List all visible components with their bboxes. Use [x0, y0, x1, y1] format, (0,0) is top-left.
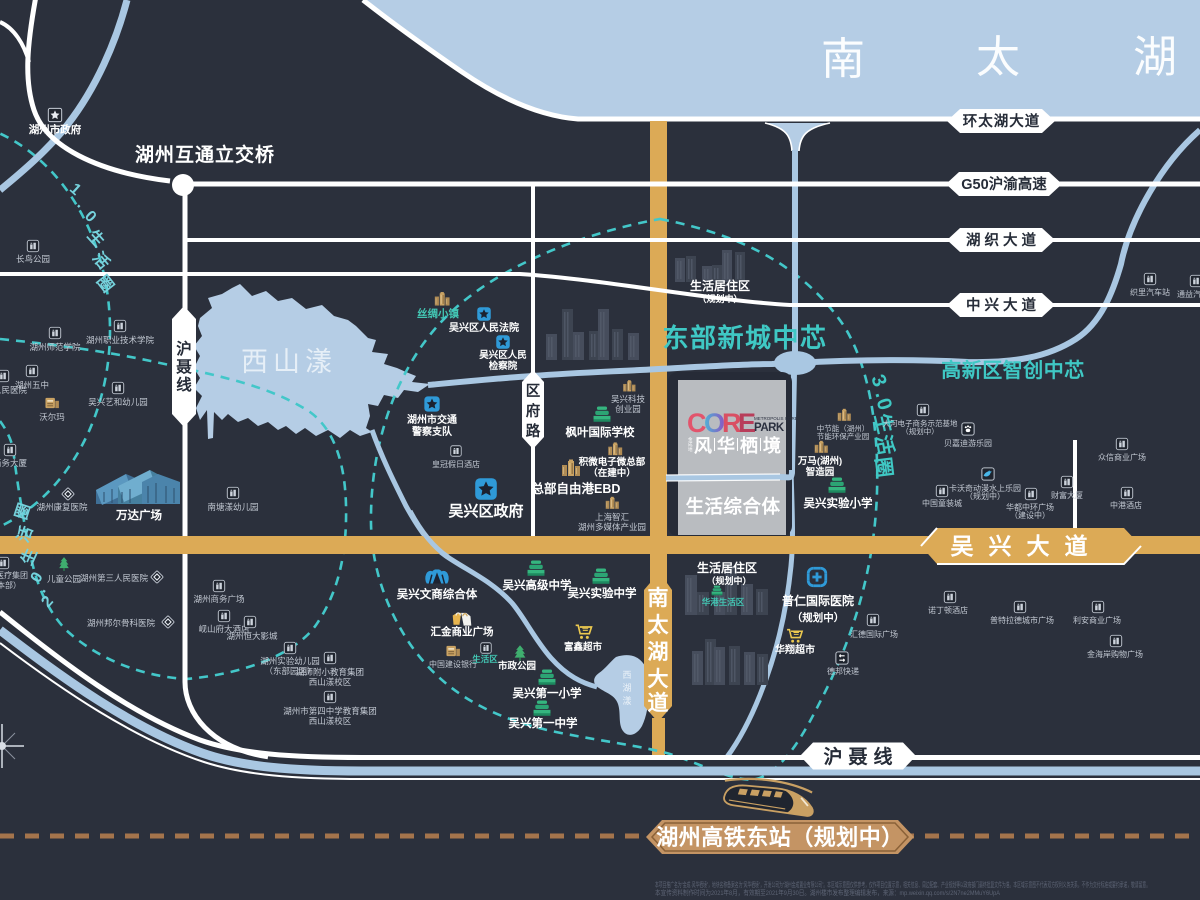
svg-text:太: 太: [976, 33, 1020, 82]
svg-text:贝嘉迪游乐园: 贝嘉迪游乐园: [944, 438, 992, 448]
svg-text:上海智汇: 上海智汇: [595, 512, 630, 522]
svg-text:汇德国际广场: 汇德国际广场: [850, 629, 898, 639]
svg-text:西: 西: [622, 670, 631, 680]
svg-text:通益汽车站: 通益汽车站: [1177, 289, 1200, 299]
svg-text:吴兴区人民法院: 吴兴区人民法院: [449, 321, 519, 334]
svg-text:诺丁顿酒店: 诺丁顿酒店: [928, 605, 968, 615]
svg-text:湖州恒大影城: 湖州恒大影城: [226, 631, 278, 641]
svg-text:富鑫超市: 富鑫超市: [564, 641, 603, 653]
svg-text:G50沪渝高速: G50沪渝高速: [961, 175, 1047, 193]
svg-text:湖师附小教育集团: 湖师附小教育集团: [296, 667, 364, 677]
svg-text:兴: 兴: [989, 533, 1012, 559]
svg-text:中港酒店: 中港酒店: [1110, 500, 1142, 510]
svg-text:枫叶国际学校: 枫叶国际学校: [566, 425, 635, 439]
svg-text:湖州市交通: 湖州市交通: [407, 413, 457, 426]
svg-text:风: 风: [694, 436, 712, 456]
svg-text:湖州实验幼儿园: 湖州实验幼儿园: [260, 656, 320, 666]
svg-text:道: 道: [1065, 533, 1088, 559]
svg-text:普特拉德城市广场: 普特拉德城市广场: [990, 615, 1054, 625]
svg-text:栖: 栖: [740, 435, 758, 456]
svg-text:湖州康复医院: 湖州康复医院: [36, 502, 88, 512]
svg-text:湖州职业技术学院: 湖州职业技术学院: [86, 335, 155, 345]
svg-text:节能环保产业园: 节能环保产业园: [817, 431, 870, 441]
svg-text:（规划中）: （规划中）: [697, 293, 742, 304]
svg-text:南: 南: [648, 586, 669, 610]
svg-text:中国建设银行: 中国建设银行: [429, 659, 477, 669]
svg-text:（本部）: （本部）: [0, 580, 21, 590]
svg-text:（规划中）: （规划中）: [792, 611, 845, 624]
svg-text:吴兴区人民: 吴兴区人民: [479, 349, 527, 361]
svg-text:人民医院: 人民医院: [0, 385, 27, 395]
svg-text:总部自由港EBD: 总部自由港EBD: [532, 481, 621, 496]
svg-text:吴兴区政府: 吴兴区政府: [448, 502, 523, 520]
svg-text:汇金商业广场: 汇金商业广场: [431, 625, 494, 638]
svg-text:财富大厦: 财富大厦: [1051, 490, 1083, 500]
svg-text:湖织大道: 湖织大道: [966, 231, 1040, 249]
svg-text:府: 府: [526, 402, 541, 420]
svg-text:沃尔玛: 沃尔玛: [39, 412, 65, 422]
svg-text:湖州多媒体产业园: 湖州多媒体产业园: [578, 522, 646, 532]
svg-text:PARK: PARK: [754, 422, 785, 434]
svg-text:湖州第三人民医院: 湖州第三人民医院: [80, 573, 149, 583]
svg-text:万马(湖州): 万马(湖州): [797, 455, 842, 467]
svg-text:道: 道: [648, 691, 669, 715]
svg-text:境: 境: [763, 435, 781, 456]
svg-text:利安商业广场: 利安商业广场: [1073, 615, 1121, 625]
svg-text:长鸟公园: 长鸟公园: [16, 254, 50, 264]
svg-text:警察支队: 警察支队: [411, 425, 453, 438]
svg-text:（规划中）: （规划中）: [965, 491, 1005, 501]
svg-text:吴兴实验小学: 吴兴实验小学: [804, 496, 873, 510]
svg-text:吴兴科技: 吴兴科技: [611, 394, 646, 404]
svg-text:圈: 圈: [871, 456, 896, 479]
svg-text:湖: 湖: [648, 641, 669, 664]
svg-text:丝绸小镇: 丝绸小镇: [417, 307, 459, 320]
svg-text:万达广场: 万达广场: [115, 508, 162, 522]
svg-text:州医疗集团: 州医疗集团: [0, 570, 28, 580]
svg-text:（建设中）: （建设中）: [1010, 510, 1050, 520]
svg-text:华翔超市: 华翔超市: [775, 643, 815, 656]
svg-text:太: 太: [648, 614, 670, 637]
svg-text:智造园: 智造园: [806, 466, 835, 478]
svg-text:织里汽车站: 织里汽车站: [1130, 287, 1170, 297]
svg-text:华港生活区: 华港生活区: [702, 597, 745, 607]
svg-text:湖州市政府: 湖州市政府: [29, 123, 82, 136]
svg-text:湖州商务广场: 湖州商务广场: [193, 594, 244, 604]
svg-text:中兴大道: 中兴大道: [966, 296, 1040, 314]
svg-text:湖州师范学院: 湖州师范学院: [29, 342, 81, 352]
svg-text:金海岸购物广场: 金海岸购物广场: [1087, 649, 1143, 659]
svg-text:商务大厦: 商务大厦: [0, 458, 27, 468]
svg-text:本宣传资料制作时间为2021年8月，有效期至2021年9月3: 本宣传资料制作时间为2021年8月，有效期至2021年9月30日。湖州楼市发布整…: [655, 888, 1000, 897]
svg-text:吴兴艺和幼儿园: 吴兴艺和幼儿园: [88, 397, 148, 407]
svg-text:大: 大: [1027, 533, 1050, 559]
svg-text:生活居住区: 生活居住区: [697, 560, 757, 575]
svg-text:沪聂线: 沪聂线: [823, 745, 898, 768]
svg-text:生活居住区: 生活居住区: [690, 278, 750, 293]
svg-text:南塘漾幼儿园: 南塘漾幼儿园: [207, 502, 258, 512]
svg-text:生活综合体: 生活综合体: [685, 496, 780, 517]
svg-text:漾: 漾: [622, 695, 631, 706]
svg-text:西山漾校区: 西山漾校区: [309, 716, 352, 726]
svg-text:吴兴实验中学: 吴兴实验中学: [568, 586, 637, 600]
svg-text:众信商业广场: 众信商业广场: [1098, 452, 1146, 462]
svg-text:METROPOLIS CORE: METROPOLIS CORE: [754, 416, 798, 421]
svg-text:高新区智创中芯: 高新区智创中芯: [941, 358, 1085, 382]
svg-text:市政公园: 市政公园: [498, 660, 536, 672]
svg-text:吴: 吴: [951, 533, 974, 559]
svg-text:湖: 湖: [1133, 33, 1177, 82]
svg-text:（规划中）: （规划中）: [901, 426, 939, 436]
svg-text:路: 路: [526, 422, 541, 440]
svg-text:吴兴高级中学: 吴兴高级中学: [503, 578, 572, 592]
svg-text:沪: 沪: [176, 339, 192, 358]
svg-text:地: 地: [688, 446, 693, 452]
svg-text:环太湖大道: 环太湖大道: [963, 112, 1041, 130]
svg-text:湖州市第四中学教育集团: 湖州市第四中学教育集团: [283, 706, 377, 716]
svg-text:（规划中）: （规划中）: [706, 575, 751, 586]
svg-text:生活区: 生活区: [472, 654, 498, 664]
svg-text:西山漾校区: 西山漾校区: [309, 677, 352, 687]
svg-text:吴兴第一中学: 吴兴第一中学: [509, 716, 578, 730]
svg-text:儿童公园: 儿童公园: [47, 574, 81, 584]
svg-text:西山漾: 西山漾: [241, 347, 337, 377]
svg-text:中国童装城: 中国童装城: [922, 498, 962, 508]
svg-text:聂: 聂: [175, 358, 192, 376]
svg-text:线: 线: [176, 375, 192, 394]
svg-text:普仁国际医院: 普仁国际医院: [782, 593, 854, 608]
svg-text:积微电子微总部: 积微电子微总部: [579, 456, 646, 468]
svg-text:华: 华: [717, 435, 735, 456]
svg-text:创业园: 创业园: [615, 404, 641, 414]
svg-text:湖: 湖: [622, 683, 631, 693]
svg-text:湖州邦尔骨科医院: 湖州邦尔骨科医院: [87, 618, 156, 628]
svg-text:湖州互通立交桥: 湖州互通立交桥: [135, 143, 275, 166]
svg-text:南: 南: [821, 35, 865, 84]
svg-text:皇冠假日酒店: 皇冠假日酒店: [432, 459, 480, 469]
svg-text:检察院: 检察院: [489, 360, 518, 372]
svg-text:区: 区: [526, 383, 541, 400]
svg-text:（在建中）: （在建中）: [588, 467, 636, 479]
svg-text:湖州高铁东站（规划中）: 湖州高铁东站（规划中）: [656, 825, 904, 850]
svg-text:吴兴第一小学: 吴兴第一小学: [513, 686, 582, 700]
svg-text:吴兴文商综合体: 吴兴文商综合体: [397, 587, 478, 601]
svg-text:大: 大: [648, 668, 669, 691]
svg-text:本项目推广名为“金成·风华栖境”，地块名称备案名为“风华栖境: 本项目推广名为“金成·风华栖境”，地块名称备案名为“风华栖境”，开发公司为“湖州…: [655, 880, 1150, 889]
svg-text:活: 活: [871, 433, 897, 457]
svg-text:德邦快递: 德邦快递: [827, 666, 859, 676]
svg-text:东部新城中芯: 东部新城中芯: [662, 323, 827, 353]
